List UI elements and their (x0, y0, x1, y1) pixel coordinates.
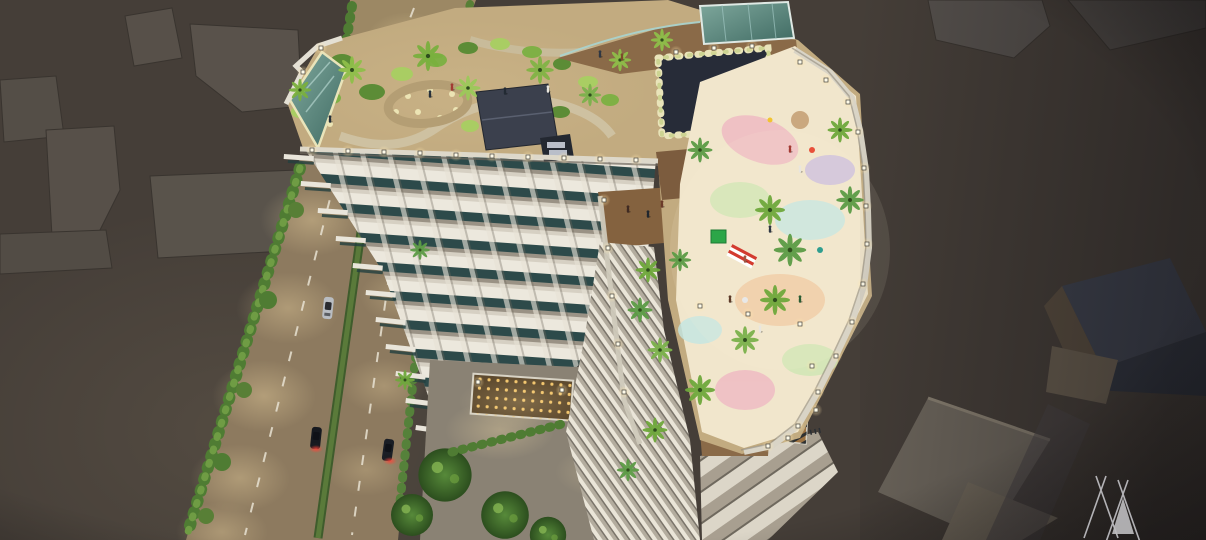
vignette (0, 0, 1206, 540)
aerial-render-canvas (0, 0, 1206, 540)
